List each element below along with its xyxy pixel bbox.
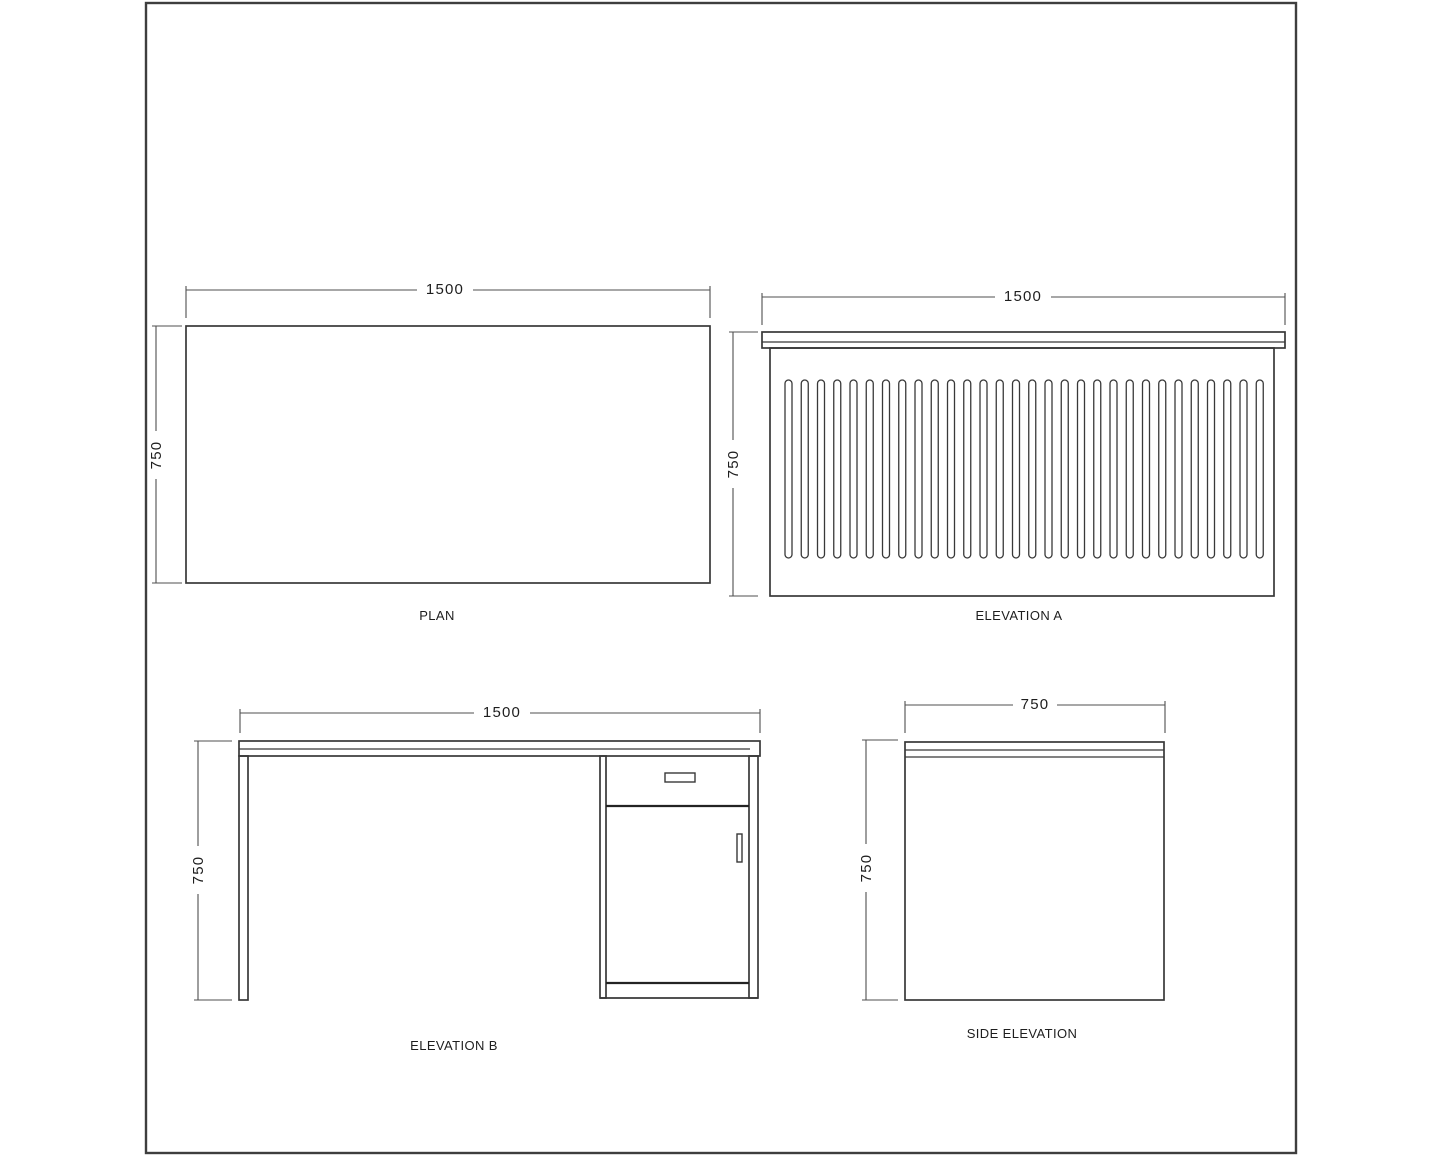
side-width-dimension: 750	[905, 696, 1165, 733]
side-width-dim-text: 750	[1021, 696, 1050, 713]
flute-slat	[964, 380, 971, 558]
flute-slat	[818, 380, 825, 558]
flute-slat	[1013, 380, 1020, 558]
elevation-b-width-dim-text: 1500	[483, 704, 521, 721]
flute-slat	[948, 380, 955, 558]
flute-slat	[1240, 380, 1247, 558]
side-height-dimension: 750	[858, 740, 898, 1000]
flute-slat	[785, 380, 792, 558]
elevation-a-height-dimension: 750	[725, 332, 758, 596]
sheet-border	[146, 3, 1296, 1153]
plan-height-dimension: 750	[148, 326, 182, 583]
drawing-sheet: 1500 750 PLAN 1500 750	[0, 0, 1445, 1156]
flute-slat	[1110, 380, 1117, 558]
side-elevation-view: 750 750 SIDE ELEVATION	[858, 696, 1165, 1041]
plan-tabletop-outline	[186, 326, 710, 583]
plan-height-dim-text: 750	[148, 441, 165, 470]
flute-slat	[850, 380, 857, 558]
flute-slat	[915, 380, 922, 558]
flute-slat	[1126, 380, 1133, 558]
plan-view-label: PLAN	[419, 608, 455, 623]
door-handle	[737, 834, 742, 862]
elevation-a-tabletop	[762, 332, 1285, 348]
flute-slat	[1045, 380, 1052, 558]
plan-width-dim-text: 1500	[426, 281, 464, 298]
flute-slat	[899, 380, 906, 558]
flute-slat	[866, 380, 873, 558]
flute-slat	[1224, 380, 1231, 558]
elevation-b-height-dimension: 750	[190, 741, 232, 1000]
flute-slat	[801, 380, 808, 558]
flute-slat	[1078, 380, 1085, 558]
drawer-handle	[665, 773, 695, 782]
elevation-b-left-leg	[239, 756, 248, 1000]
flute-slat	[1061, 380, 1068, 558]
technical-drawing-canvas: 1500 750 PLAN 1500 750	[0, 0, 1445, 1156]
flute-slat	[1029, 380, 1036, 558]
flute-slat	[834, 380, 841, 558]
flute-slat	[931, 380, 938, 558]
side-elevation-outline	[905, 742, 1164, 1000]
elevation-b-view-label: ELEVATION B	[410, 1038, 498, 1053]
elevation-b-height-dim-text: 750	[190, 856, 207, 885]
flute-slat	[1094, 380, 1101, 558]
plan-width-dimension: 1500	[186, 281, 710, 318]
flute-slat	[1175, 380, 1182, 558]
elevation-a-width-dim-text: 1500	[1004, 288, 1042, 305]
side-elevation-view-label: SIDE ELEVATION	[967, 1026, 1078, 1041]
plan-view: 1500 750 PLAN	[148, 281, 710, 623]
flute-slat	[1191, 380, 1198, 558]
elevation-a-width-dimension: 1500	[762, 288, 1285, 325]
flute-slat	[1143, 380, 1150, 558]
flute-slat	[1256, 380, 1263, 558]
elevation-b-view: 1500 750 ELEVATION B	[190, 704, 760, 1053]
flute-slat	[883, 380, 890, 558]
flute-slat	[996, 380, 1003, 558]
elevation-a-view: 1500 750 ELEVATION A	[725, 288, 1285, 623]
side-height-dim-text: 750	[858, 854, 875, 883]
flute-slat	[1208, 380, 1215, 558]
flute-slat	[1159, 380, 1166, 558]
flute-slat	[980, 380, 987, 558]
pedestal-left-wall	[600, 756, 606, 998]
elevation-b-width-dimension: 1500	[240, 704, 760, 733]
elevation-a-view-label: ELEVATION A	[975, 608, 1062, 623]
elevation-a-height-dim-text: 750	[725, 450, 742, 479]
pedestal-right-wall	[749, 756, 758, 998]
flute-pattern	[785, 380, 1263, 558]
